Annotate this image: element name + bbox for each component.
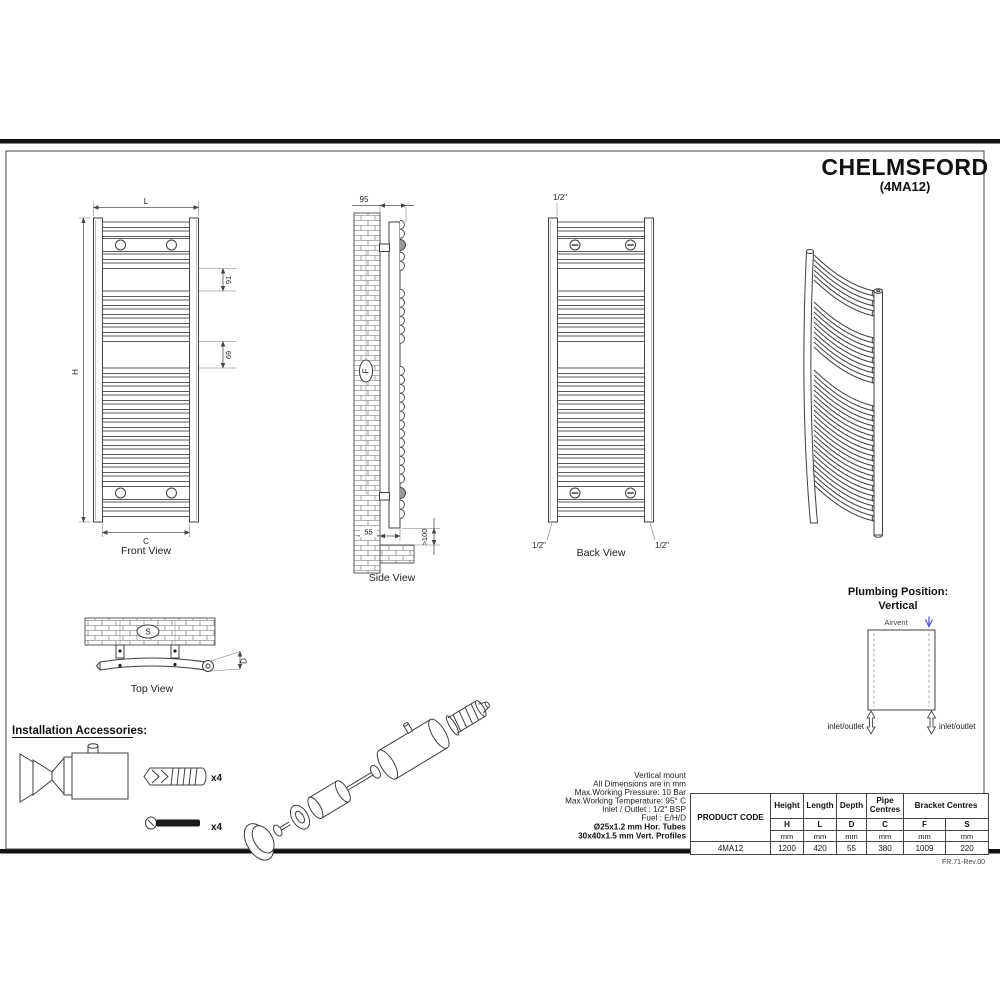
curved-rungs bbox=[814, 255, 877, 522]
dim-connection-bl: 1/2" bbox=[532, 541, 546, 550]
dim-total-depth: 95 bbox=[360, 195, 369, 204]
inlet-arrow-icon bbox=[928, 711, 936, 734]
perspective-view bbox=[804, 250, 883, 538]
right-post bbox=[874, 291, 883, 535]
col-header-length: Length bbox=[804, 794, 837, 819]
exploded-bracket-assembly bbox=[235, 681, 499, 865]
side-view-caption: Side View bbox=[369, 572, 416, 584]
front-view-caption: Front View bbox=[121, 545, 171, 557]
letter-h: H bbox=[771, 819, 804, 831]
wall-bracket-drawing bbox=[20, 744, 128, 802]
revision-number: FR.71-Rev.00 bbox=[942, 859, 985, 866]
unit-cell: mm bbox=[804, 831, 837, 842]
installation-accessories: Installation Accessories: x4 x4 bbox=[12, 725, 223, 833]
front-tubes bbox=[103, 222, 190, 517]
col-header-height: Height bbox=[771, 794, 804, 819]
inlet-outlet-right: inlet/outlet bbox=[939, 722, 976, 731]
letter-c: C bbox=[867, 819, 904, 831]
col-header-depth: Depth bbox=[837, 794, 867, 819]
unit-cell: mm bbox=[771, 831, 804, 842]
inlet-outlet-left: inlet/outlet bbox=[828, 722, 865, 731]
bracket-hole bbox=[167, 488, 177, 498]
dim-gap2: 69 bbox=[224, 351, 233, 359]
bracket-hole bbox=[167, 240, 177, 250]
letter-s: S bbox=[946, 819, 989, 831]
letter-f: F bbox=[904, 819, 946, 831]
unit-cell: mm bbox=[946, 831, 989, 842]
back-view-caption: Back View bbox=[577, 547, 626, 559]
dim-depth: D bbox=[240, 658, 249, 664]
side-view: F 95 55 >100 Side View bbox=[352, 195, 440, 584]
back-tubes bbox=[558, 222, 645, 517]
screw-drawing bbox=[146, 817, 201, 829]
bracket-hole bbox=[116, 488, 126, 498]
col-header-bracket-centres: Bracket Centres bbox=[904, 794, 989, 819]
back-view: 1/2" 1/2" 1/2" Back View bbox=[532, 193, 669, 559]
product-code-header: PRODUCT CODE bbox=[691, 794, 771, 842]
dim-bracket-centres-h: S bbox=[145, 628, 150, 637]
plumbing-title-1: Plumbing Position: bbox=[848, 586, 948, 598]
screw-quantity: x4 bbox=[211, 822, 223, 833]
dim-bracket-centres-v: F bbox=[362, 368, 371, 373]
value-bracket-s: 220 bbox=[946, 842, 989, 855]
letter-d: D bbox=[837, 819, 867, 831]
dim-height: H bbox=[71, 369, 80, 375]
wall-plug-drawing bbox=[144, 768, 206, 786]
curved-tube bbox=[100, 658, 206, 670]
top-view-caption: Top View bbox=[131, 683, 174, 695]
product-code: (4MA12) bbox=[880, 179, 931, 194]
unit-cell: mm bbox=[904, 831, 946, 842]
spec-block: Vertical mount All Dimensions are in mm … bbox=[565, 771, 687, 841]
dim-connection-br: 1/2" bbox=[655, 541, 669, 550]
spec-line: 30x40x1.5 mm Vert. Profiles bbox=[578, 832, 686, 841]
inlet-arrow-icon bbox=[867, 711, 875, 734]
plumbing-position: Plumbing Position: Vertical Airvent inle… bbox=[828, 586, 977, 734]
wall-section bbox=[354, 213, 380, 573]
letter-l: L bbox=[804, 819, 837, 831]
accessories-heading: Installation Accessories: bbox=[12, 725, 147, 737]
left-post bbox=[804, 252, 818, 523]
value-depth: 55 bbox=[837, 842, 867, 855]
plug-quantity: x4 bbox=[211, 773, 223, 784]
plumbing-title-2: Vertical bbox=[878, 600, 917, 612]
dim-width: L bbox=[144, 197, 149, 206]
spec-line: Ø25x1.2 mm Hor. Tubes bbox=[594, 823, 687, 832]
radiator-outline bbox=[868, 630, 935, 710]
dim-wall-gap: 55 bbox=[364, 528, 372, 537]
wall-bracket bbox=[380, 493, 390, 501]
product-code-value: 4MA12 bbox=[691, 842, 771, 855]
bracket-hole bbox=[116, 240, 126, 250]
value-height: 1200 bbox=[771, 842, 804, 855]
product-title: CHELMSFORD bbox=[821, 154, 988, 180]
airvent-arrow-icon bbox=[926, 617, 933, 627]
dim-connection-top: 1/2" bbox=[553, 193, 567, 202]
front-view: L H C 91 69 Front View bbox=[71, 197, 236, 557]
unit-cell: mm bbox=[837, 831, 867, 842]
value-length: 420 bbox=[804, 842, 837, 855]
floor-section bbox=[380, 545, 414, 563]
col-header-pipe-centres: Pipe Centres bbox=[867, 794, 904, 819]
drawing-sheet: CHELMSFORD (4MA12) L H C 91 bbox=[0, 0, 1000, 1000]
spec-line: Fuel : E/H/D bbox=[641, 814, 686, 823]
value-pipe-centres: 380 bbox=[867, 842, 904, 855]
airvent-label: Airvent bbox=[884, 618, 908, 627]
wall-bracket bbox=[380, 244, 390, 252]
dim-gap1: 91 bbox=[224, 276, 233, 284]
top-view: S D Top View bbox=[85, 618, 249, 695]
spec-table: PRODUCT CODE Height Length Depth Pipe Ce… bbox=[690, 793, 989, 855]
side-tube-bumps bbox=[400, 220, 406, 518]
unit-cell: mm bbox=[867, 831, 904, 842]
dim-floor-clearance: >100 bbox=[420, 529, 429, 546]
value-bracket-f: 1009 bbox=[904, 842, 946, 855]
